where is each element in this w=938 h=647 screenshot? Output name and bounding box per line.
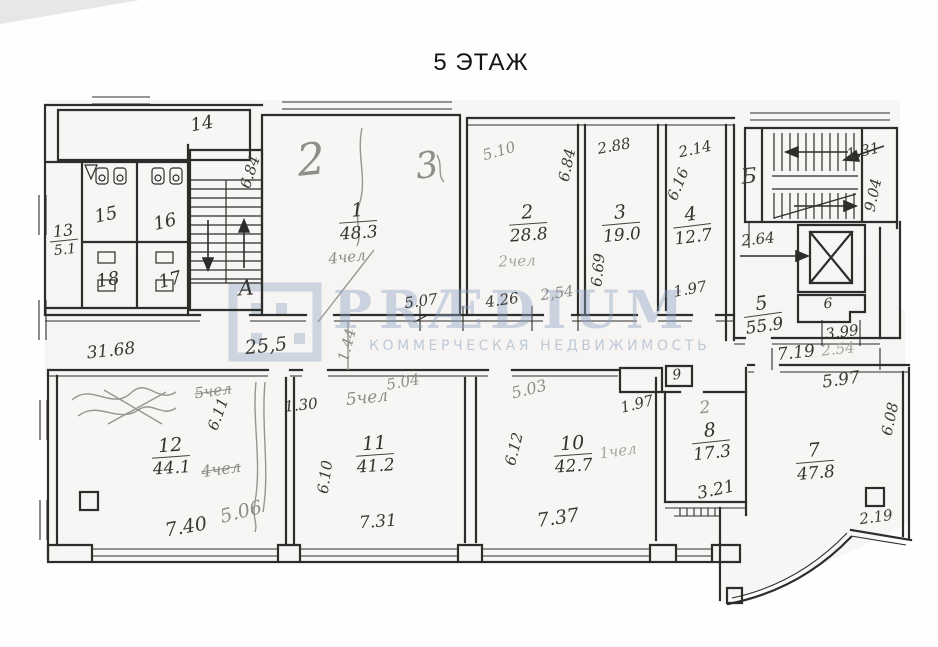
room-8-label: 817.3 <box>690 419 732 466</box>
room-13-label: 135.1 <box>48 221 80 260</box>
room-7-label: 747.8 <box>794 439 835 485</box>
room-18-label: 18 <box>95 268 121 293</box>
dim-room3-depth: 6.69 <box>587 252 608 287</box>
watermark-tagline: КОММЕРЧЕСКАЯ НЕДВИЖИМОСТЬ <box>369 338 710 354</box>
dim-lift-hall: 2.64 <box>740 228 775 249</box>
dim-room11-width: 7.31 <box>358 511 397 534</box>
page-title: 5 ЭТАЖ <box>433 49 528 77</box>
pencil-hall-door: 2.54 <box>820 338 855 359</box>
stairwell-b-label: Б <box>740 163 758 188</box>
pencil-room1-mark: 2 <box>294 133 327 187</box>
dim-room11-left: 1.30 <box>283 394 318 415</box>
room-11-label: 1141.2 <box>354 432 395 478</box>
pencil-room8-mark: 2 <box>699 397 712 418</box>
room-14-label: 14 <box>189 112 215 137</box>
room-3-label: 319.0 <box>600 201 641 247</box>
room-1-label: 148.3 <box>338 199 379 245</box>
room-6-label: 6 <box>823 296 833 313</box>
room-2-label: 228.8 <box>508 201 549 247</box>
stairwell-a-label: А <box>237 275 255 300</box>
floor-plan: 5 ЭТАЖ PRÆDIUM КОММЕРЧЕСКАЯ НЕДВИЖИМОСТЬ… <box>0 0 938 647</box>
room-12-label: 1244.1 <box>150 434 191 480</box>
dim-hall-right: 7.19 <box>776 341 816 365</box>
room-5-label: 555.9 <box>741 291 785 339</box>
room-10-label: 1042.7 <box>552 432 593 478</box>
room-9-label: 9 <box>671 366 682 383</box>
pencil-room2-people: 2чел <box>498 251 536 270</box>
room-4-label: 412.7 <box>671 202 714 250</box>
dim-corridor-mid: 25,5 <box>244 333 288 359</box>
